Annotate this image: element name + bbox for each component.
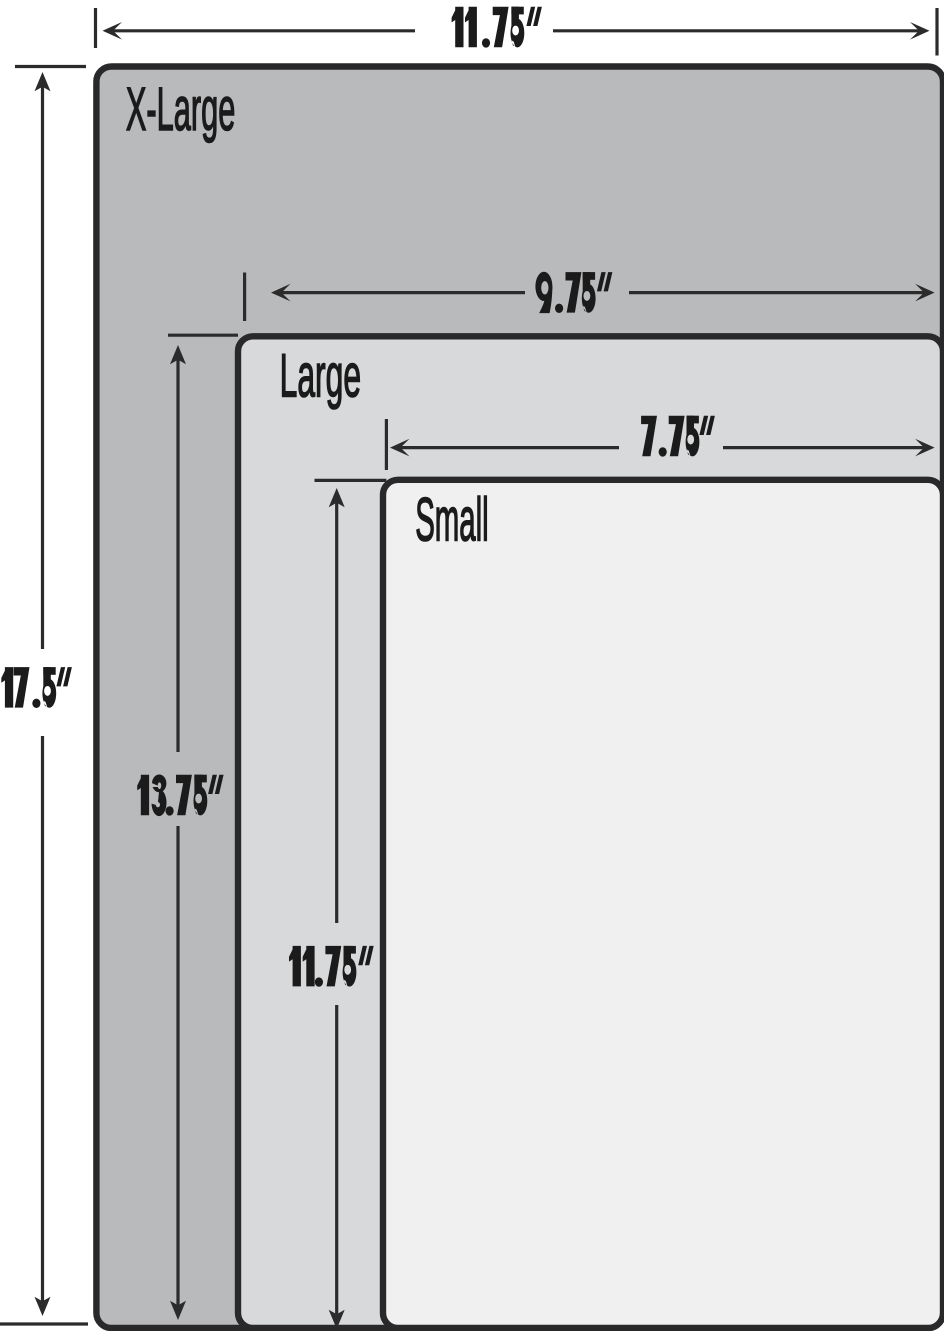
- svg-text:Small: Small: [415, 487, 489, 555]
- svg-text:X-Large: X-Large: [126, 76, 236, 144]
- svg-text:Large: Large: [280, 342, 361, 410]
